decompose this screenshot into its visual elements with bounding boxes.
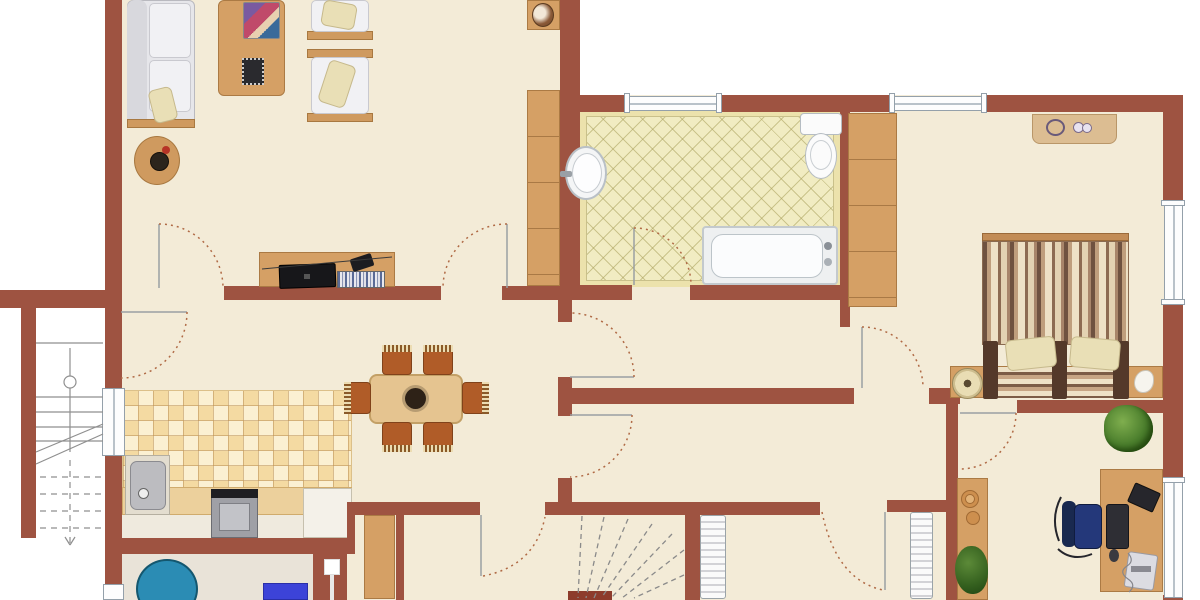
window-bath-top — [628, 96, 718, 111]
stair-red-bar — [568, 591, 612, 600]
window-cap — [624, 93, 630, 113]
dresser-swirl — [1046, 119, 1065, 136]
mouse — [1109, 549, 1119, 562]
bed-duvet — [982, 241, 1129, 345]
side-table-item — [150, 152, 169, 171]
living-tall-cabinet — [527, 90, 560, 286]
bed-foot-panel — [1067, 367, 1113, 398]
window-cap — [889, 93, 895, 113]
armchair-top-wood — [307, 31, 373, 40]
wall-top-seg-1 — [580, 95, 628, 112]
bathtub-faucet — [824, 242, 832, 250]
sofa-backrest — [127, 0, 147, 128]
wall-left-upper — [105, 0, 122, 307]
window-right-lower — [1164, 480, 1183, 598]
dining-chair-cap — [482, 382, 489, 414]
magazine — [243, 2, 280, 39]
sofa-cushion — [149, 3, 191, 58]
window-right-upper — [1164, 203, 1183, 302]
toilet-tank — [800, 113, 842, 135]
dining-chair-cap — [344, 382, 351, 414]
window-cap — [1161, 299, 1185, 305]
wall-living-bottom-right — [502, 286, 560, 300]
media-books — [337, 271, 385, 288]
dining-ornament — [405, 388, 426, 409]
dining-chair-cap — [423, 445, 453, 452]
wall-bath-bottom-right — [690, 285, 845, 300]
chimney-pipe — [330, 575, 334, 600]
wall-stairwell-right — [685, 513, 700, 600]
wall-corridor-bottom-left — [350, 502, 480, 515]
wall-left-outer-band — [0, 290, 105, 308]
open-wood-door — [364, 515, 395, 599]
window-utility — [103, 584, 124, 600]
closet-cabinet — [848, 113, 897, 307]
window-kitchen — [102, 388, 125, 456]
bathtub-inner — [711, 234, 823, 278]
utility-blue-box — [263, 583, 308, 600]
game-box — [242, 58, 264, 85]
bath-sink-tap — [560, 171, 572, 177]
bath-sink-inner — [572, 153, 602, 193]
wall-kitchen-step — [347, 502, 355, 554]
bed-top-edge — [982, 233, 1129, 241]
wall-thin-lower — [396, 515, 404, 600]
keyboard — [1106, 504, 1129, 549]
bed-pillow — [1069, 336, 1122, 371]
printer-slot — [1131, 566, 1151, 572]
sideboard-plant — [955, 546, 988, 594]
ext-stair-newel — [64, 376, 76, 388]
wall-corridor-bottom-right — [887, 500, 946, 512]
dining-chair-cap — [423, 345, 453, 352]
ext-stair-break — [36, 424, 103, 452]
side-table-flower — [162, 146, 170, 154]
ext-stair-break — [36, 434, 103, 464]
stove-door — [219, 503, 250, 531]
kitchen-sink-basin — [130, 461, 166, 510]
wall-right-seg-1 — [1163, 95, 1183, 205]
wall-living-bottom — [224, 286, 441, 300]
chimney-access — [324, 559, 340, 575]
decor-slice — [966, 511, 980, 525]
bedside-lamp — [952, 368, 983, 399]
floor-plan — [0, 0, 1200, 600]
tv-dot — [304, 274, 310, 279]
wall-hall-stub-3 — [558, 478, 572, 504]
wall-right-seg-2 — [1163, 300, 1183, 482]
wall-kitchen-bottom — [105, 538, 347, 554]
wall-top-seg-2 — [718, 95, 893, 112]
stove-top — [211, 489, 258, 498]
window-cap — [716, 93, 722, 113]
bed-foot-panel — [998, 367, 1052, 398]
bathtub-drain — [824, 258, 832, 266]
decor-slice-inner — [965, 494, 975, 504]
wall-bath-bottom-left — [560, 285, 632, 300]
kitchen-faucet — [138, 488, 149, 499]
cat-basket — [532, 3, 554, 27]
bed-post — [983, 341, 998, 399]
window-cap — [1161, 477, 1185, 483]
office-chair-seat — [1074, 504, 1102, 549]
wall-corridor-top — [558, 388, 854, 404]
radiator-left — [700, 515, 726, 599]
dining-chair-cap — [382, 445, 412, 452]
window-cap — [981, 93, 987, 113]
dining-chair-cap — [382, 345, 412, 352]
wall-ext-stair-rail — [21, 302, 36, 538]
fridge — [303, 488, 352, 538]
window-bedroom-top — [893, 96, 983, 111]
radiator-right — [910, 512, 933, 599]
wall-corridor-bottom-mid — [545, 502, 820, 515]
dresser-ring — [1082, 123, 1092, 133]
armchair-wood-bottom — [307, 113, 373, 122]
wall-top-seg-3 — [983, 95, 1163, 112]
window-cap — [1161, 200, 1185, 206]
toilet-seat — [810, 140, 832, 170]
ext-stair-arrow — [65, 537, 75, 545]
bed-pillow — [1005, 335, 1058, 371]
bedroom-plant — [1104, 405, 1153, 452]
